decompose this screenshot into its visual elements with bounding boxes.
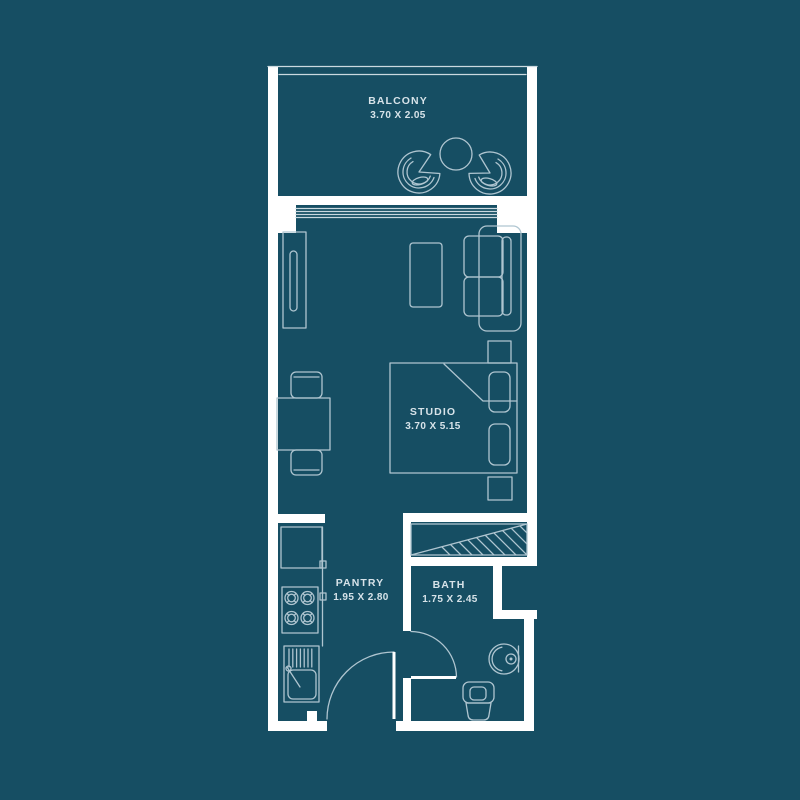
entrance-door-swing-arc [327,652,394,719]
balcony-chair-left [398,151,440,193]
tv-unit [283,232,306,328]
basin-drain [510,658,513,661]
balcony-chair-right [469,152,511,194]
floor-plan: BALCONY 3.70 X 2.05 [0,0,800,800]
studio-dimensions: 3.70 X 5.15 [405,421,461,432]
bath-door-swing-arc [411,632,457,678]
pantry-label: PANTRY [336,577,385,589]
balcony-label: BALCONY [368,95,428,107]
outer-wall-right-lower [524,610,534,731]
kitchen-sink [284,646,319,702]
pantry-dimensions: 1.95 X 2.80 [333,592,389,603]
stove [282,587,318,633]
drainboard [289,649,312,667]
bed [390,363,517,473]
toilet-flush-button [470,687,486,700]
pantry-room: PANTRY 1.95 X 2.80 [281,527,389,702]
dining-set [277,372,330,475]
toilet [463,682,494,720]
studio-pantry-divider-wall [268,514,325,523]
pillow [489,372,510,412]
entrance-door [327,652,394,719]
bath-label: BATH [433,579,466,591]
studio-top-wall-stub-right [497,204,537,233]
dining-chair-bottom [291,450,322,475]
dining-chair-top [291,372,322,398]
bath-door [411,632,457,678]
sofa-seat-cushion [464,277,503,316]
studio-label: STUDIO [410,406,456,418]
coffee-table [410,243,442,307]
balcony-bottom-wall [268,196,537,205]
pillow [489,424,510,465]
outer-wall-right-upper [527,66,537,566]
bath-right-wall-upper [493,557,502,618]
nightstand [488,477,512,500]
burner [285,592,298,605]
bath-left-wall-upper [403,513,411,631]
bottom-wall-left [268,721,327,731]
balcony-railing [268,67,537,75]
side-table [488,341,511,363]
balcony-room: BALCONY 3.70 X 2.05 [268,67,537,195]
bed-sheet-fold [444,364,517,401]
bath-top-wall [403,513,537,522]
shower-bottom-wall [403,557,537,566]
burner [301,592,314,605]
toilet-bowl [466,703,491,720]
bottom-wall-stub [307,711,317,723]
sliding-door [296,209,497,218]
fridge [281,527,326,568]
bed-outline [390,363,517,473]
tv [290,251,297,311]
sofa-seat-cushion [464,236,503,277]
dining-table [277,398,330,450]
wash-basin [489,644,519,674]
burner [285,612,298,625]
sofa [464,226,521,331]
bath-room: BATH 1.75 X 2.45 [400,505,575,720]
bath-dimensions: 1.75 X 2.45 [422,594,478,605]
burner [301,612,314,625]
studio-top-wall-stub-left [268,204,296,233]
bottom-wall-right [396,721,534,731]
balcony-dimensions: 3.70 X 2.05 [370,110,426,121]
studio-room: STUDIO 3.70 X 5.15 [277,226,521,500]
balcony-table [440,138,472,170]
